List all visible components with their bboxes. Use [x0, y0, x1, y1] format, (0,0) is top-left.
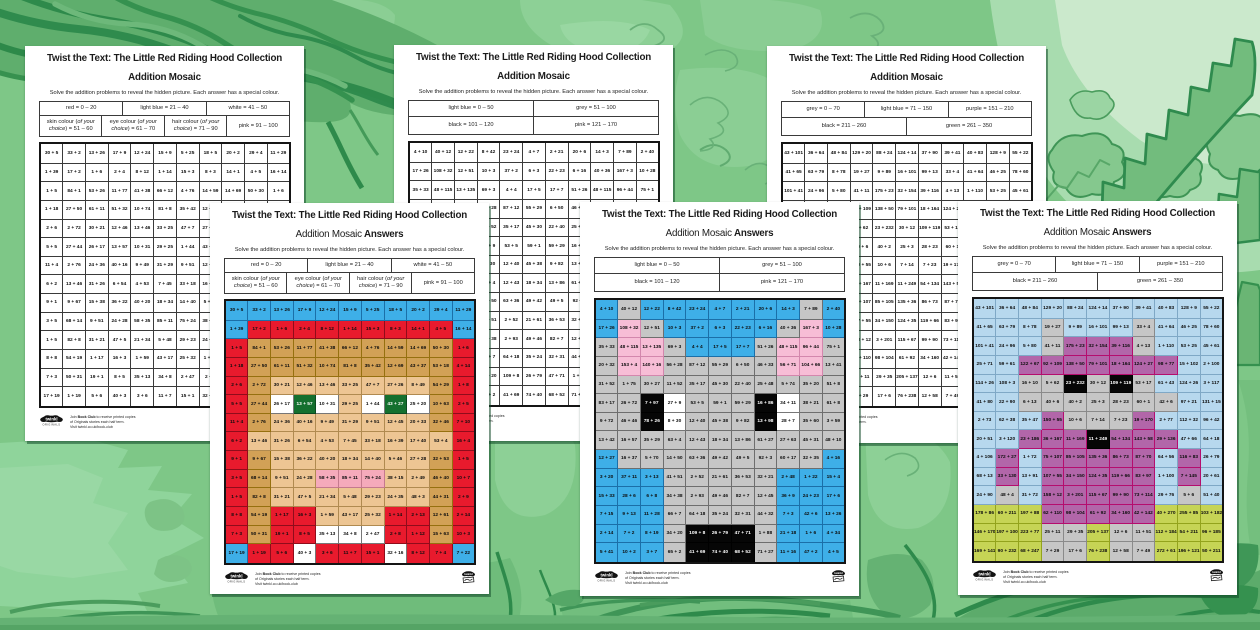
svg-text:ORIGINALS: ORIGINALS	[228, 581, 246, 584]
svg-text:twinkl: twinkl	[230, 573, 242, 578]
svg-text:ORIGINALS: ORIGINALS	[43, 424, 61, 427]
svg-text:twinkl: twinkl	[600, 572, 612, 577]
svg-text:twinkl: twinkl	[1212, 570, 1221, 574]
svg-text:ORIGINALS: ORIGINALS	[976, 579, 994, 582]
svg-text:twinkl: twinkl	[45, 416, 57, 421]
svg-text:twinkl: twinkl	[834, 571, 843, 575]
svg-text:twinkl: twinkl	[978, 571, 990, 576]
svg-text:twinkl: twinkl	[464, 572, 473, 576]
svg-text:ORIGINALS: ORIGINALS	[598, 580, 616, 583]
